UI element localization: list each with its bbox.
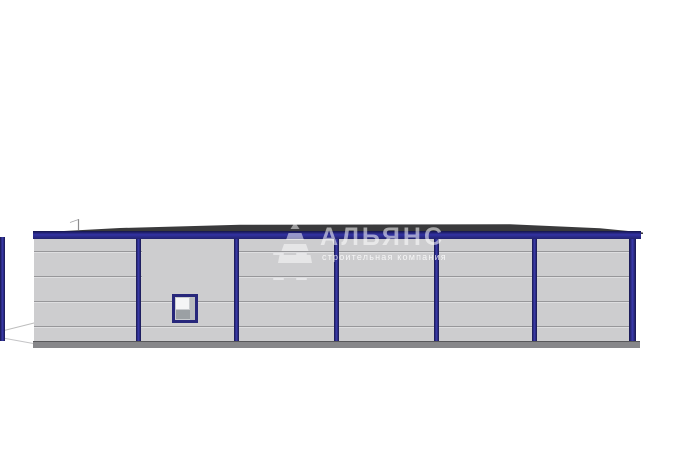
frame-column <box>434 237 439 341</box>
window-shade <box>176 310 190 319</box>
foundation-plinth <box>33 341 640 348</box>
faint-seam-dash <box>273 278 284 280</box>
frame-column <box>629 237 636 341</box>
window-pane <box>176 298 189 309</box>
roof-fascia-band <box>33 231 641 239</box>
faint-seam-dash <box>296 278 307 280</box>
small-window <box>172 294 198 323</box>
frame-column <box>334 237 339 341</box>
faint-seam-dash <box>296 253 307 255</box>
door-bay-panel <box>142 243 234 283</box>
render-canvas: АЛЬЯНС строительная компания <box>0 0 700 474</box>
frame-column <box>136 237 141 341</box>
frame-column <box>234 237 239 341</box>
roof-vent-tick-icon <box>70 220 79 223</box>
frame-column <box>532 237 537 341</box>
faint-seam-dash <box>273 253 284 255</box>
frame-column <box>0 237 5 341</box>
window-jamb <box>190 297 195 320</box>
ground-line <box>0 338 36 345</box>
